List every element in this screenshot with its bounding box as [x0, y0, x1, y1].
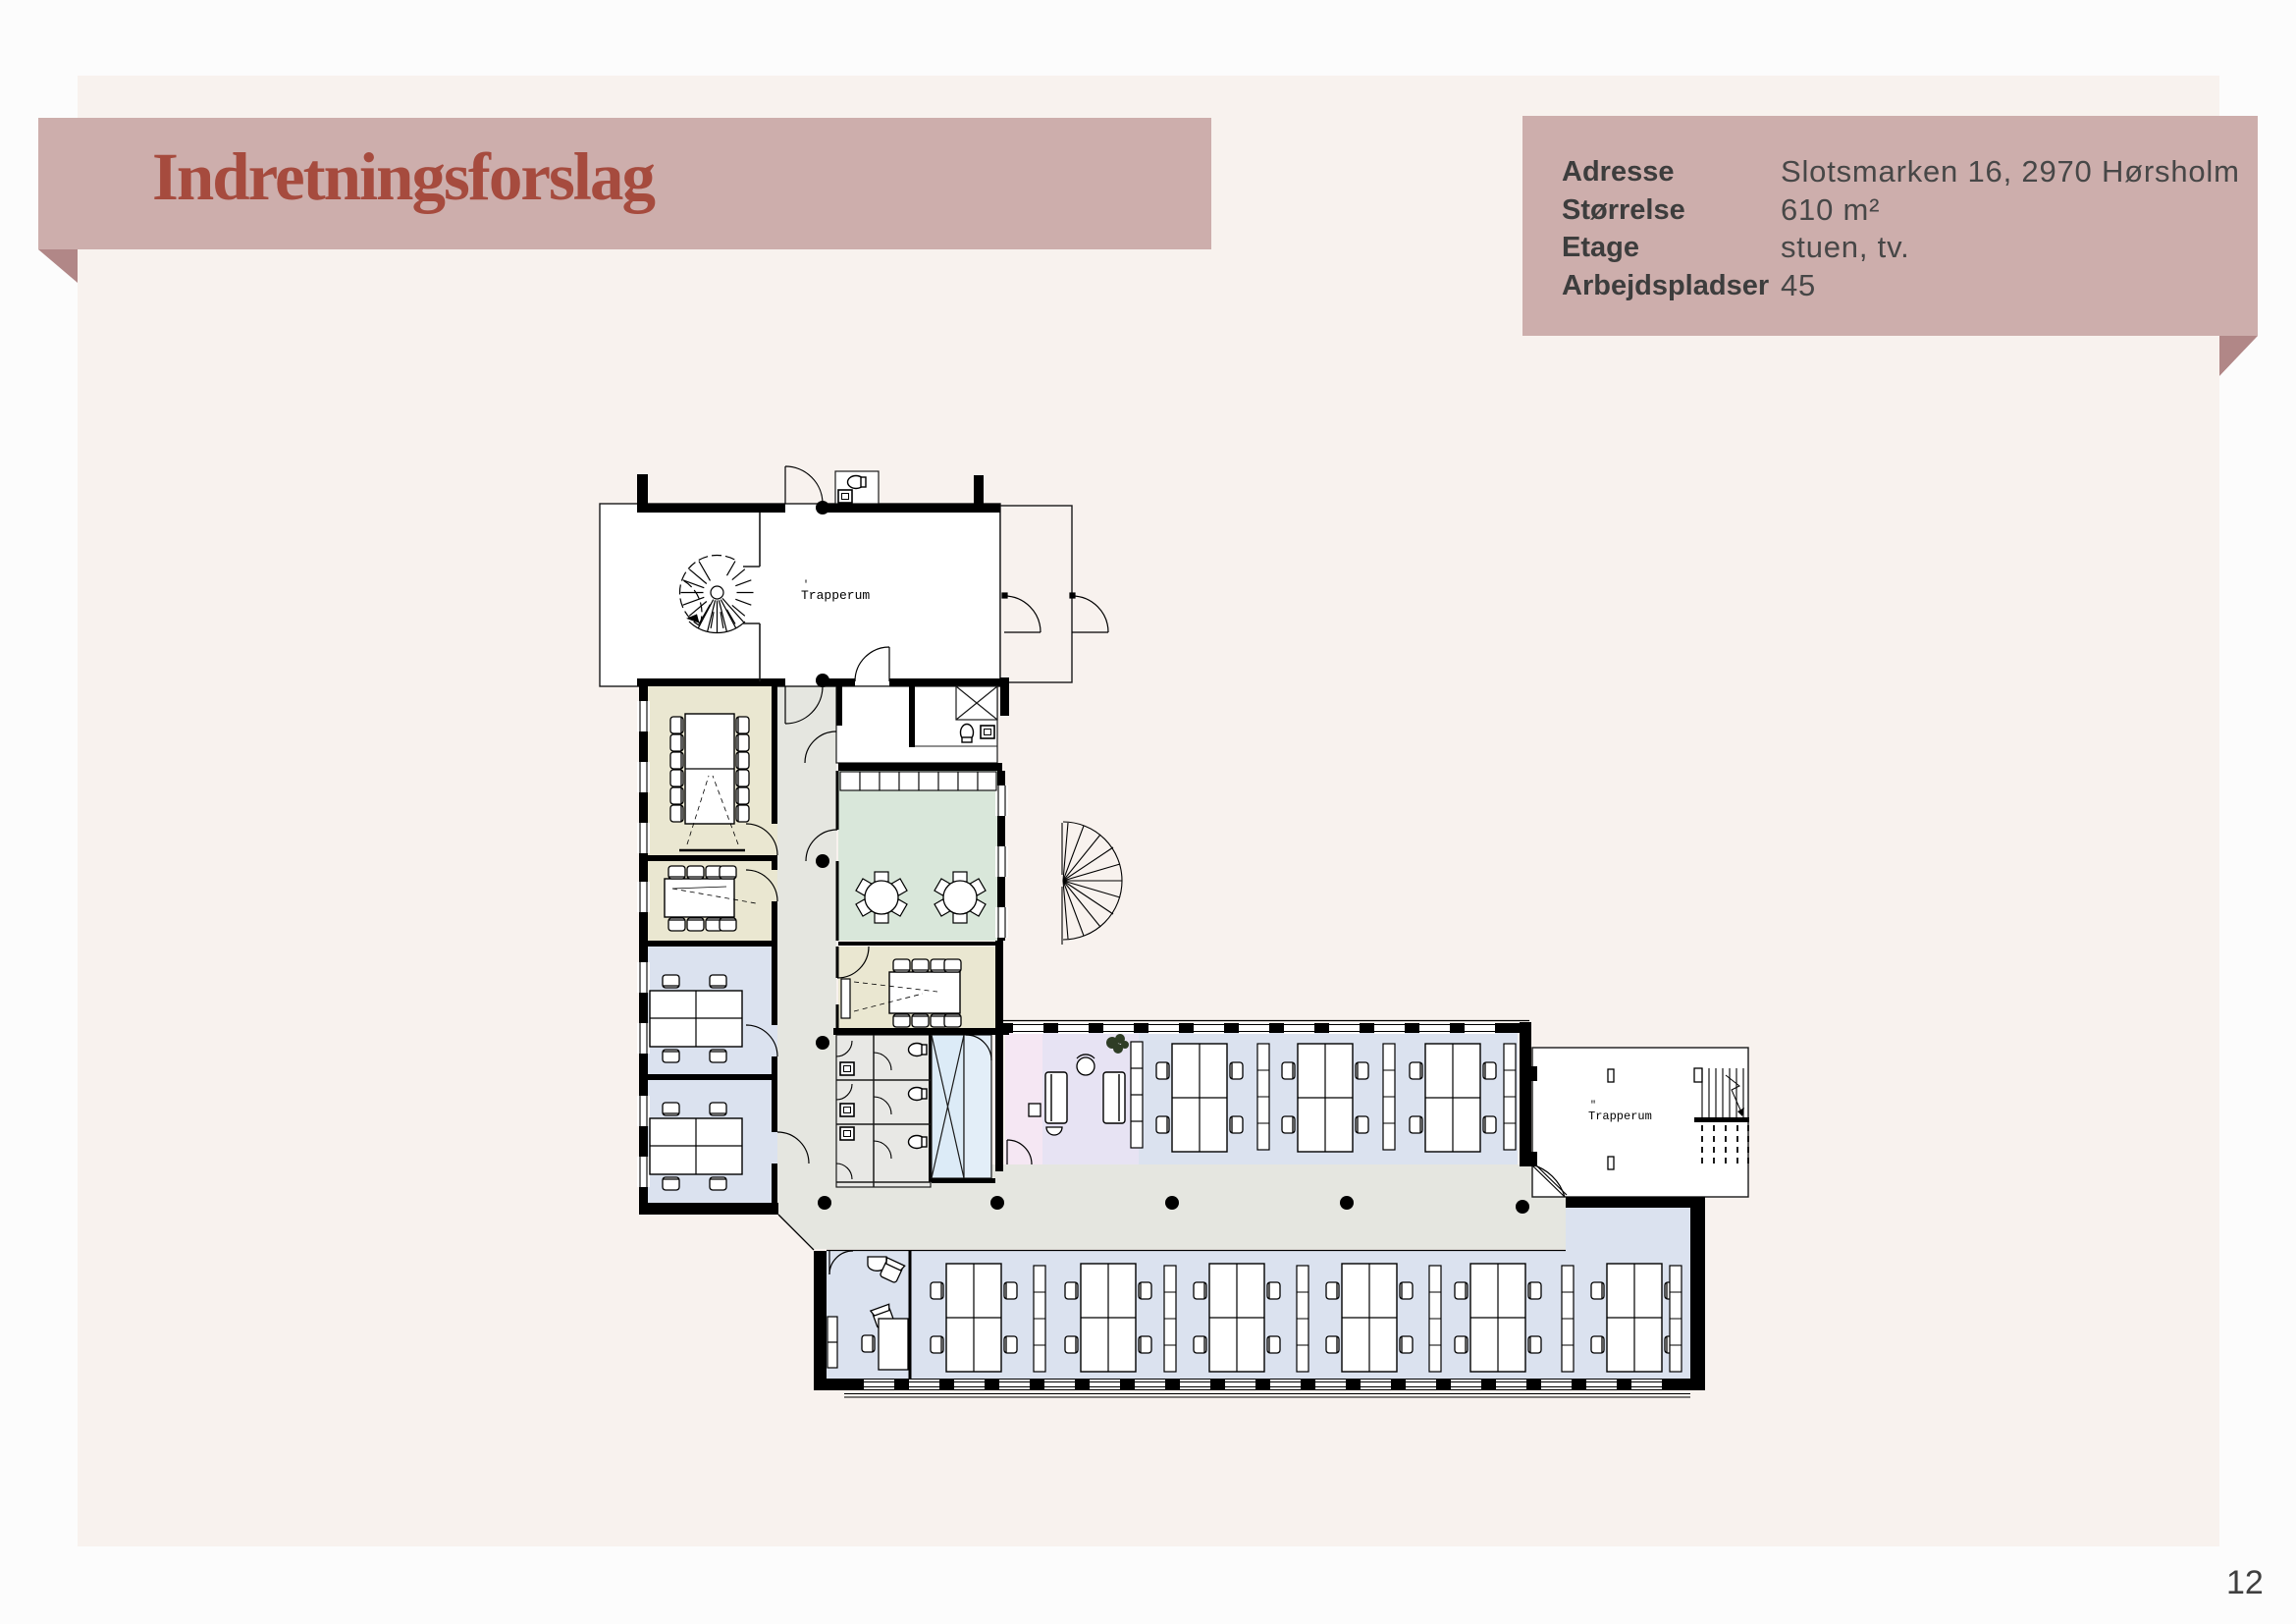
svg-text:Trapperum: Trapperum	[801, 588, 870, 603]
svg-text:': '	[803, 579, 809, 591]
svg-text:": "	[1590, 1100, 1596, 1111]
svg-text:Trapperum: Trapperum	[1588, 1110, 1652, 1123]
